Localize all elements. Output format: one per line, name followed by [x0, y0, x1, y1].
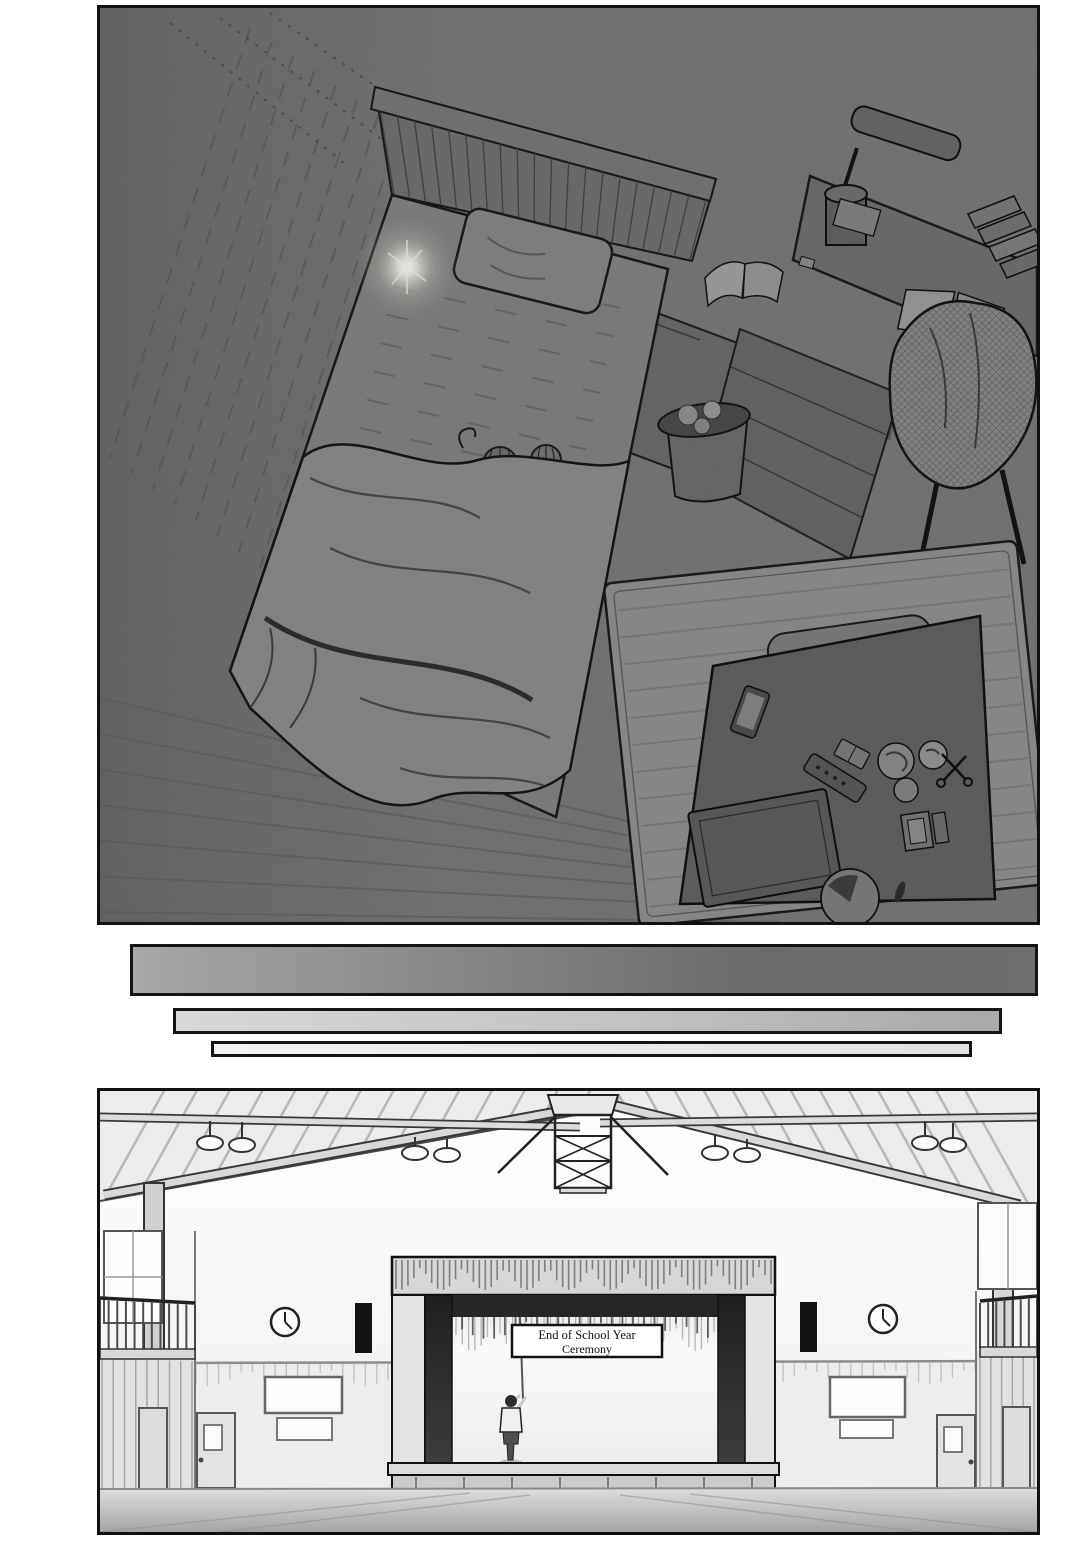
bedroom-panel — [97, 5, 1040, 925]
proscenium-column-left — [392, 1295, 425, 1463]
proscenium-lintel — [392, 1257, 775, 1295]
transition-bar-medium — [173, 1008, 1002, 1034]
right-window — [978, 1203, 1037, 1289]
stage-curtain-left — [425, 1295, 452, 1463]
notice-boards-right — [830, 1377, 905, 1438]
bedroom-scene — [100, 8, 1037, 922]
banner-line-1: End of School Year — [538, 1328, 636, 1342]
stage-backdrop — [452, 1295, 718, 1463]
speaker-right — [800, 1302, 817, 1352]
banner-line-2: Ceremony — [562, 1342, 612, 1356]
stage: End of School Year Ceremony — [388, 1257, 779, 1500]
gym-panel: End of School Year Ceremony — [97, 1088, 1040, 1535]
stage-valance-curtain — [425, 1295, 745, 1317]
wall-clock-left — [271, 1308, 299, 1336]
wall-clock-right — [869, 1305, 897, 1333]
transition-bar-dark — [130, 944, 1038, 996]
stage-curtain-right — [718, 1295, 745, 1463]
panel-leaning-left — [139, 1408, 167, 1497]
screentone — [100, 8, 1037, 922]
stage-banner: End of School Year Ceremony — [512, 1325, 662, 1357]
door-right — [937, 1415, 975, 1490]
proscenium-column-right — [742, 1295, 775, 1463]
speaker-left — [355, 1303, 372, 1353]
door-left — [197, 1413, 235, 1488]
gym-scene: End of School Year Ceremony — [100, 1091, 1037, 1532]
transition-bar-light — [211, 1041, 972, 1057]
left-window — [104, 1231, 162, 1323]
gym-floor — [100, 1488, 1037, 1532]
panel-leaning-right — [1003, 1407, 1030, 1495]
notice-boards-left — [265, 1377, 342, 1440]
